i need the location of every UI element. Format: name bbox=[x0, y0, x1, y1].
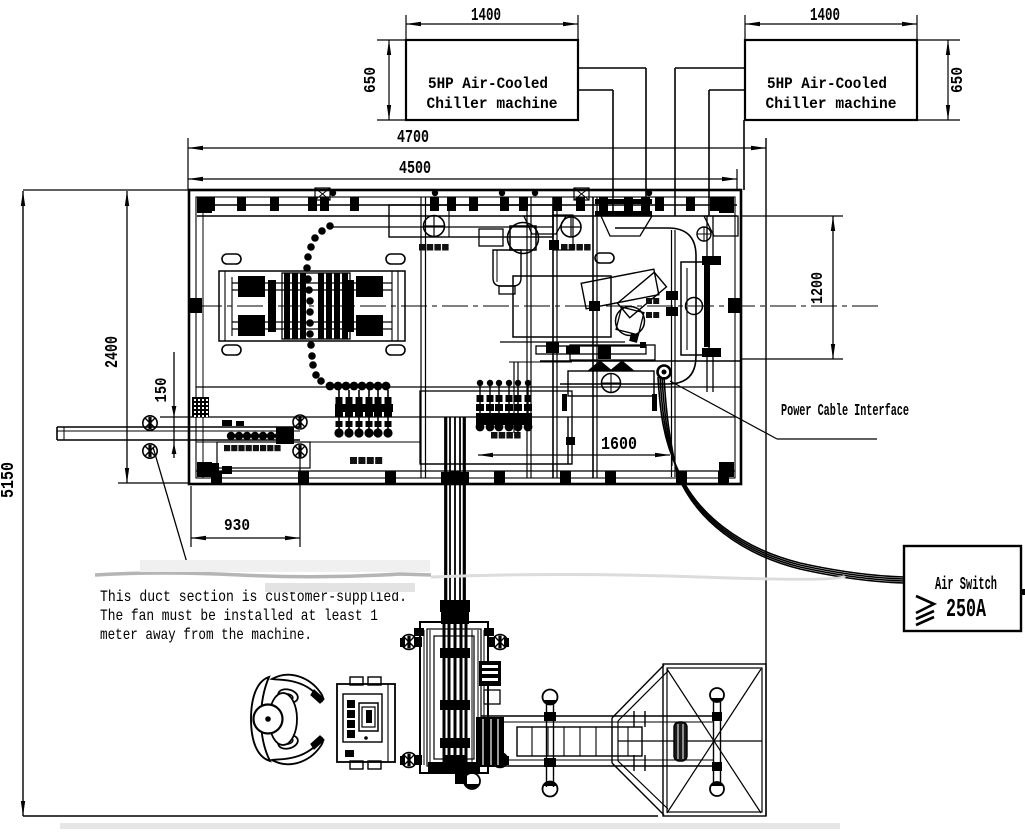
svg-text:150: 150 bbox=[153, 378, 172, 403]
svg-text:5150: 5150 bbox=[0, 462, 19, 498]
svg-text:250A: 250A bbox=[946, 594, 986, 624]
svg-text:1200: 1200 bbox=[809, 272, 828, 304]
svg-text:650: 650 bbox=[362, 67, 381, 93]
svg-text:Power Cable Interface: Power Cable Interface bbox=[781, 401, 909, 420]
svg-text:5HP Air-Cooled: 5HP Air-Cooled bbox=[767, 75, 887, 93]
svg-text:Chiller machine: Chiller machine bbox=[766, 95, 897, 113]
svg-text:Air Switch: Air Switch bbox=[935, 575, 997, 595]
svg-text:Chiller machine: Chiller machine bbox=[427, 95, 558, 113]
svg-text:5HP Air-Cooled: 5HP Air-Cooled bbox=[428, 75, 548, 93]
svg-text:1400: 1400 bbox=[471, 6, 501, 26]
svg-text:2400: 2400 bbox=[103, 336, 123, 368]
svg-text:4500: 4500 bbox=[399, 159, 431, 179]
svg-text:1600: 1600 bbox=[601, 435, 637, 455]
svg-text:meter away from the machine.: meter away from the machine. bbox=[100, 626, 312, 644]
svg-text:1400: 1400 bbox=[810, 6, 840, 26]
svg-text:4700: 4700 bbox=[397, 128, 429, 148]
svg-text:650: 650 bbox=[949, 67, 968, 93]
svg-text:930: 930 bbox=[224, 517, 250, 536]
svg-text:The fan must be installed at l: The fan must be installed at least 1 bbox=[100, 607, 378, 625]
